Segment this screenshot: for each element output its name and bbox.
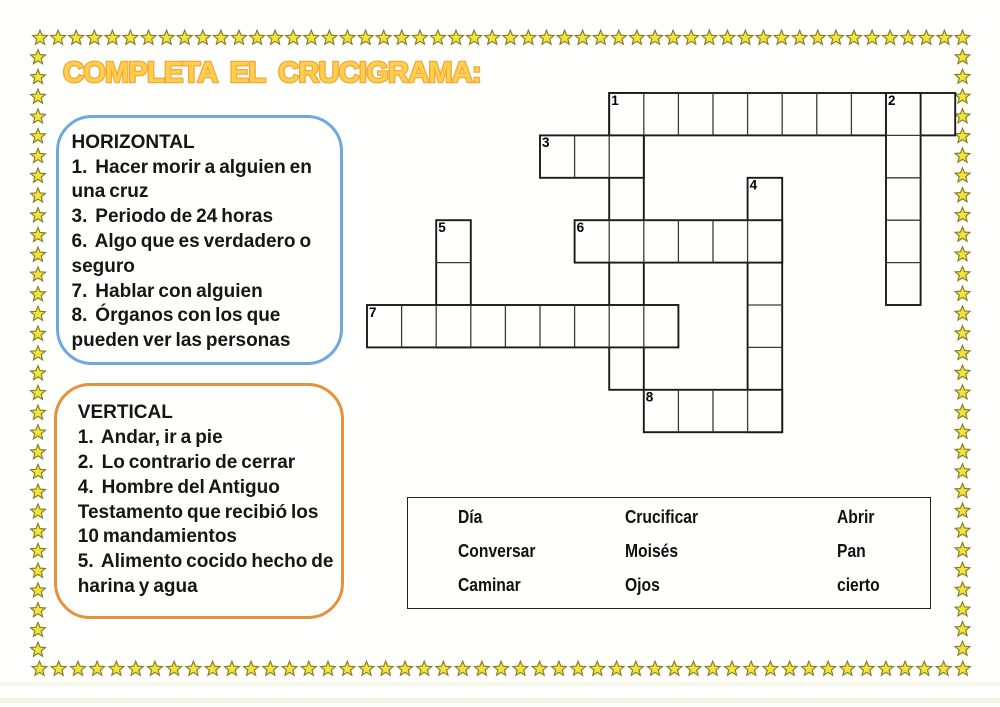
svg-text:1: 1 xyxy=(611,93,619,108)
svg-text:3: 3 xyxy=(542,135,550,150)
svg-text:7: 7 xyxy=(369,305,377,320)
svg-text:4: 4 xyxy=(750,178,758,193)
svg-text:5: 5 xyxy=(438,220,446,235)
svg-text:8: 8 xyxy=(646,390,654,405)
svg-text:2: 2 xyxy=(888,93,896,108)
svg-text:6: 6 xyxy=(577,220,585,235)
